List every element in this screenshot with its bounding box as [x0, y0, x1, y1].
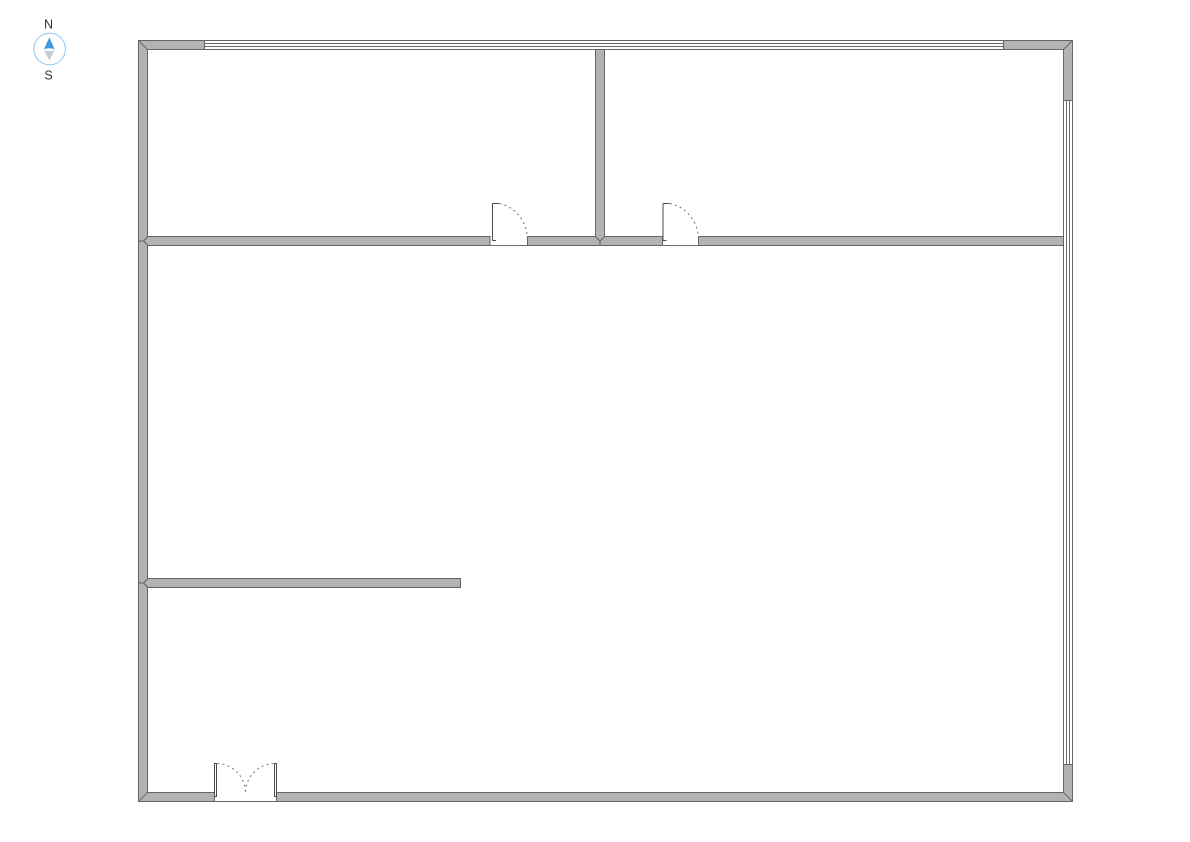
svg-text:S: S: [44, 69, 52, 83]
svg-text:N: N: [44, 17, 53, 31]
